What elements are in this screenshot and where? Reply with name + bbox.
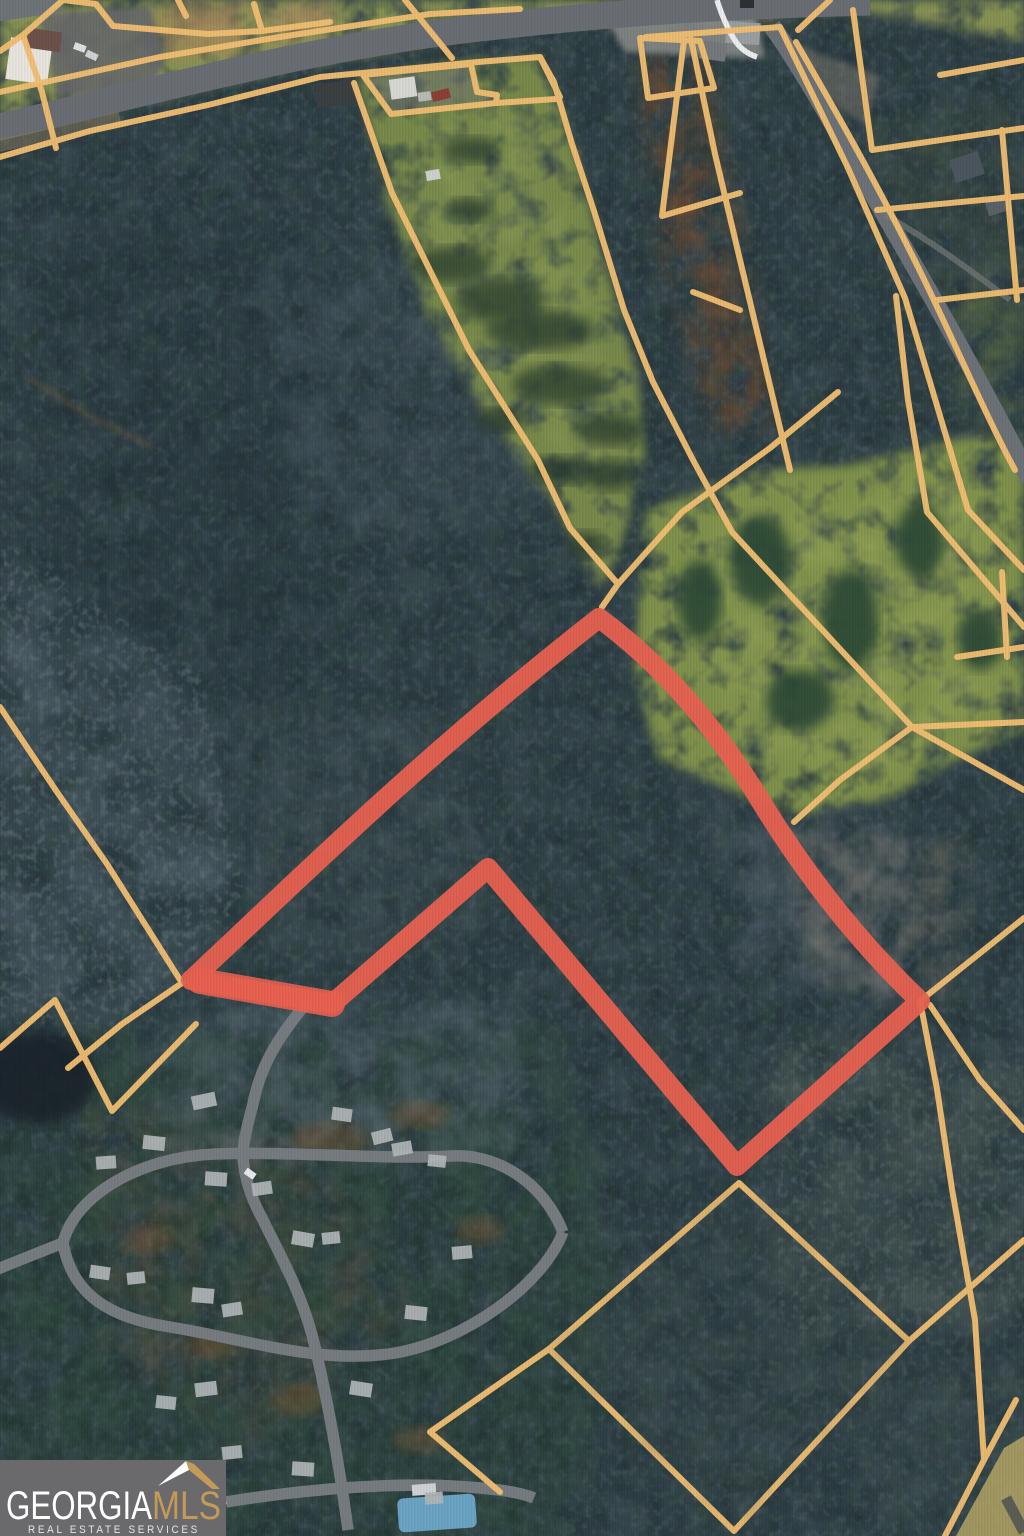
svg-text:GEORGIA: GEORGIA [6,1484,152,1528]
svg-text:MLS: MLS [152,1484,221,1528]
svg-text:REAL ESTATE SERVICES: REAL ESTATE SERVICES [28,1524,200,1536]
